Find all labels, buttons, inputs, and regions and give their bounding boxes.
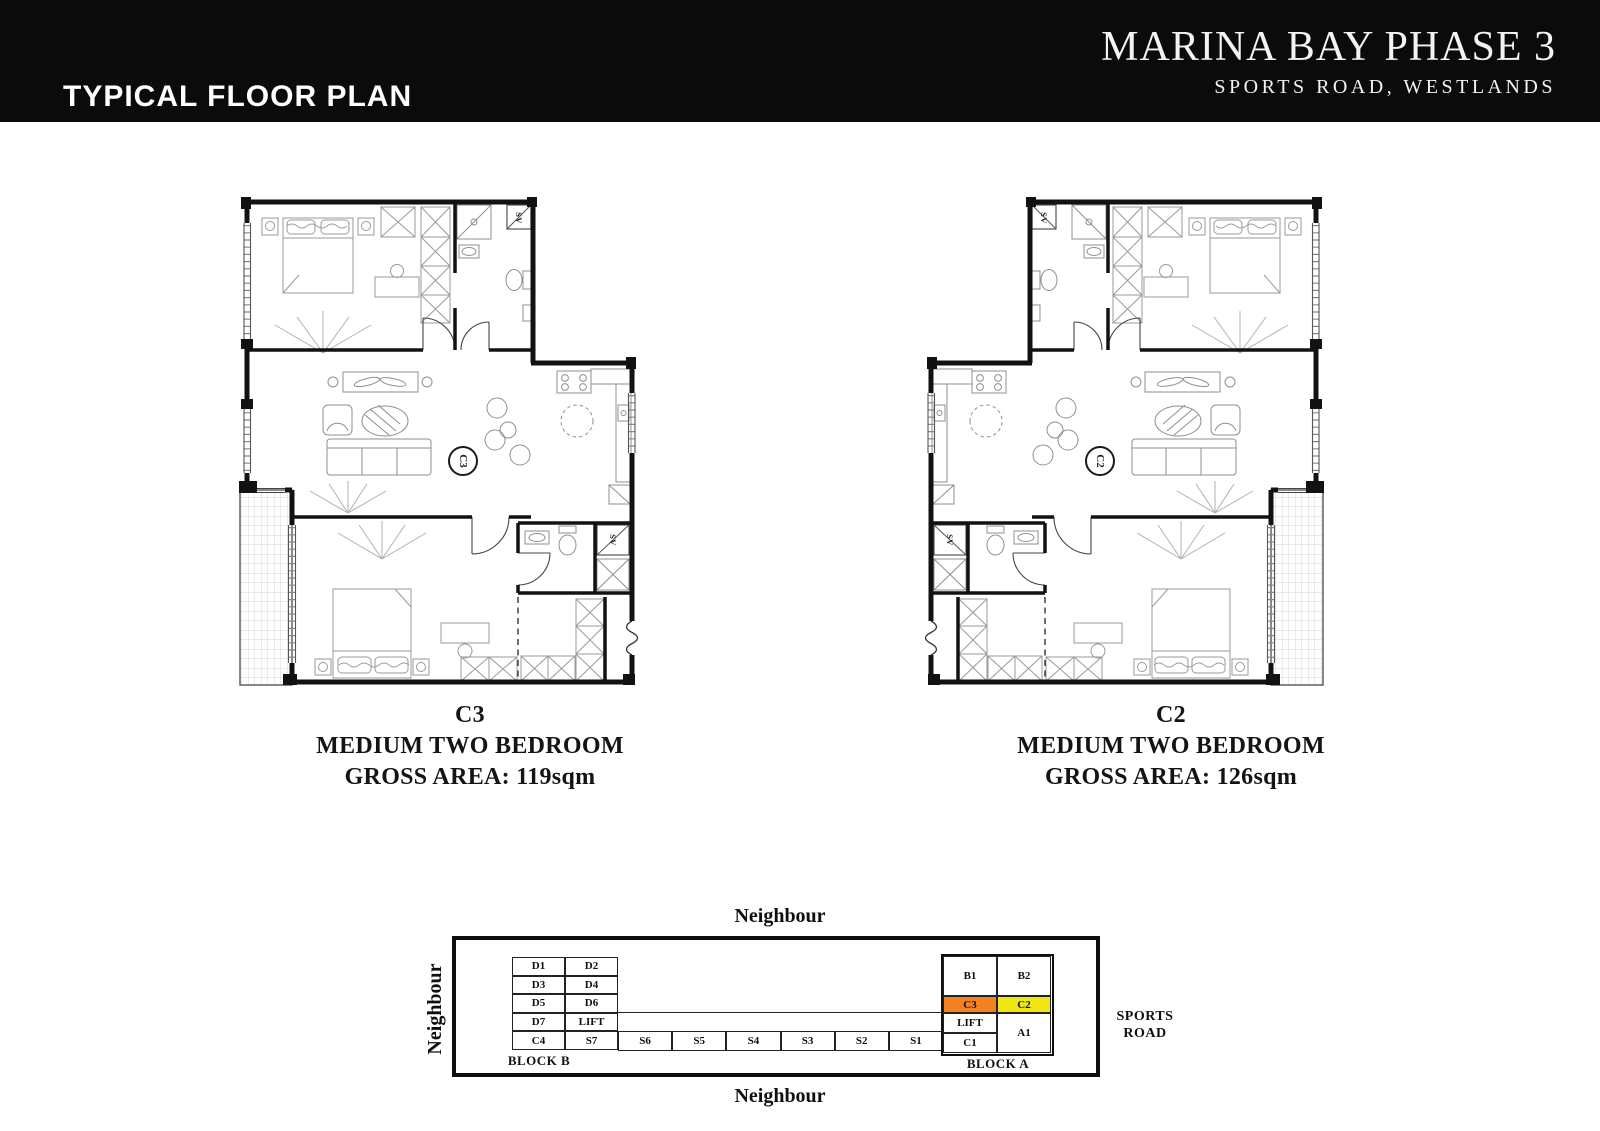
key-plan-cell-lift-b: LIFT [565,1013,618,1032]
project-subtitle: SPORTS ROAD, WESTLANDS [1101,76,1556,99]
key-plan-cell-b1: B1 [943,956,997,996]
floor-plan-c3-drawing [235,193,645,693]
project-header: MARINA BAY PHASE 3 SPORTS ROAD, WESTLAND… [1101,24,1556,99]
sports-road-label: SPORTS ROAD [1095,1008,1195,1042]
caption-c2: C2 MEDIUM TWO BEDROOM GROSS AREA: 126sqm [966,700,1376,793]
key-plan-cell-c3-highlight: C3 [943,996,997,1013]
key-plan-cell-s3: S3 [781,1031,835,1051]
key-plan-cell-c4: C4 [512,1031,565,1050]
shaft-label-c2-top: SV [1035,209,1053,227]
sheet-title: TYPICAL FLOOR PLAN [63,80,412,114]
header-bar: TYPICAL FLOOR PLAN MARINA BAY PHASE 3 SP… [0,0,1600,122]
key-plan-cell-s2: S2 [835,1031,889,1051]
block-a-grid: B1 B2 C3 C2 LIFT C1 A1 [941,954,1054,1056]
sports-road-line2: ROAD [1095,1025,1195,1042]
block-b-label: BLOCK B [484,1053,594,1069]
key-plan-cell-d5: D5 [512,994,565,1013]
project-title: MARINA BAY PHASE 3 [1101,24,1556,70]
key-plan-cell-s1: S1 [889,1031,943,1051]
key-plan-cell-s7: S7 [565,1031,618,1050]
caption-c2-unit: C2 [966,700,1376,731]
shaft-label-c3-bottom: SV [604,531,622,549]
floor-plan-c2-drawing [918,193,1328,693]
key-plan-cell-d3: D3 [512,976,565,995]
neighbour-label-top: Neighbour [680,905,880,928]
caption-c2-type: MEDIUM TWO BEDROOM [966,731,1376,762]
unit-circle-label-c2: C2 [1086,447,1114,475]
neighbour-label-left: Neighbour [424,929,446,1089]
shaft-label-c3-top: SV [510,209,528,227]
key-plan-cell-d1: D1 [512,957,565,976]
block-a-label: BLOCK A [942,1056,1054,1072]
key-plan-cell-s5: S5 [672,1031,726,1051]
strip-units-grid: S6 S5 S4 S3 S2 S1 [618,1031,943,1051]
shaft-label-c2-bottom: SV [941,531,959,549]
key-plan-cell-d4: D4 [565,976,618,995]
key-plan-cell-d6: D6 [565,994,618,1013]
floor-plan-sheet: TYPICAL FLOOR PLAN MARINA BAY PHASE 3 SP… [0,0,1600,1131]
key-plan-corridor [618,1012,943,1032]
key-plan-cell-s4: S4 [726,1031,780,1051]
block-b-grid: D1 D2 D3 D4 D5 D6 D7 LIFT C4 S7 [512,957,618,1050]
unit-circle-label-c3: C3 [449,447,477,475]
caption-c3-unit: C3 [265,700,675,731]
caption-c2-area: GROSS AREA: 126sqm [966,762,1376,793]
caption-c3: C3 MEDIUM TWO BEDROOM GROSS AREA: 119sqm [265,700,675,793]
key-plan-cell-c2-highlight: C2 [997,996,1051,1013]
key-plan-cell-b2: B2 [997,956,1051,996]
caption-c3-type: MEDIUM TWO BEDROOM [265,731,675,762]
neighbour-label-bottom: Neighbour [680,1085,880,1108]
key-plan-cell-d2: D2 [565,957,618,976]
key-plan-cell-lift-a: LIFT [943,1013,997,1033]
sports-road-line1: SPORTS [1095,1008,1195,1025]
key-plan-cell-a1: A1 [997,1013,1051,1053]
caption-c3-area: GROSS AREA: 119sqm [265,762,675,793]
key-plan-cell-s6: S6 [618,1031,672,1051]
key-plan-cell-d7: D7 [512,1013,565,1032]
key-plan-cell-c1: C1 [943,1033,997,1053]
